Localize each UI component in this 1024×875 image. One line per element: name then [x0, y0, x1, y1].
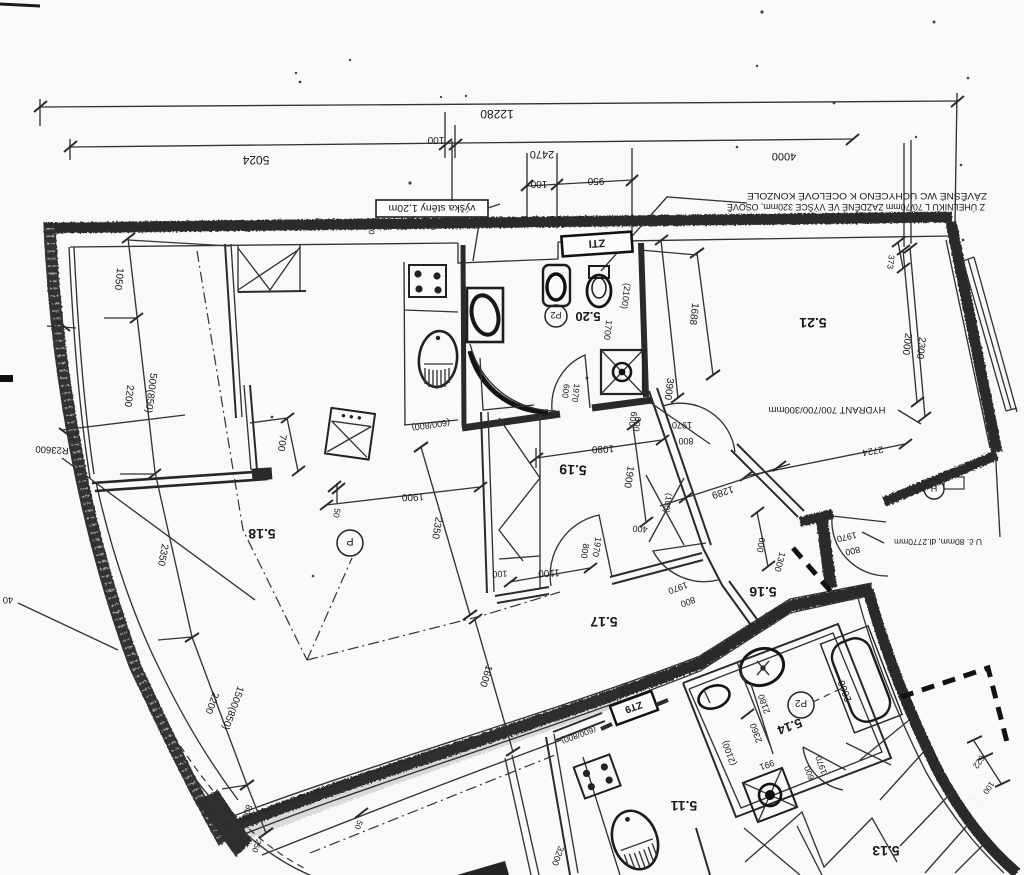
svg-text:800: 800 [678, 436, 693, 446]
svg-text:4000: 4000 [772, 150, 796, 162]
svg-text:5.19: 5.19 [559, 461, 587, 478]
svg-text:1080: 1080 [591, 442, 614, 454]
svg-text:5.13: 5.13 [872, 843, 899, 859]
svg-text:12280: 12280 [480, 107, 514, 121]
svg-text:P: P [346, 535, 353, 547]
svg-text:5.20: 5.20 [575, 309, 600, 324]
svg-text:5.18: 5.18 [248, 526, 275, 542]
svg-text:5.21: 5.21 [799, 315, 826, 331]
svg-text:950: 950 [587, 175, 604, 186]
svg-text:100: 100 [530, 178, 547, 189]
svg-text:U č. 80mm, dl.2770mm: U č. 80mm, dl.2770mm [894, 537, 982, 547]
svg-text:700: 700 [275, 434, 288, 452]
svg-text:5.16: 5.16 [749, 584, 776, 600]
svg-text:P2: P2 [794, 697, 807, 708]
svg-text:5024: 5024 [242, 153, 269, 167]
svg-text:400: 400 [632, 523, 648, 534]
svg-text:R23600: R23600 [35, 443, 69, 456]
svg-text:2470: 2470 [530, 148, 554, 160]
svg-text:5.17: 5.17 [590, 614, 617, 630]
svg-text:ZÁVĚSNÉ WC UCHYCENO K OCELOVÉ: ZÁVĚSNÉ WC UCHYCENO K OCELOVÉ KONZOLE [747, 190, 987, 201]
svg-text:5.11: 5.11 [671, 798, 698, 814]
svg-text:výška stěny 1,20m: výška stěny 1,20m [388, 202, 475, 214]
svg-text:P2: P2 [550, 310, 561, 320]
svg-text:1900: 1900 [401, 490, 424, 502]
svg-text:1100: 1100 [537, 566, 559, 578]
svg-text:H: H [931, 483, 938, 493]
svg-text:600: 600 [560, 383, 572, 399]
svg-text:40: 40 [3, 594, 14, 605]
svg-text:50: 50 [331, 507, 343, 518]
svg-text:100: 100 [427, 134, 444, 145]
svg-text:1970: 1970 [672, 420, 692, 430]
svg-text:100: 100 [492, 569, 508, 580]
svg-text:Z ÚHELNÍKU L 70/70mm ZAZDĚNÉ V: Z ÚHELNÍKU L 70/70mm ZAZDĚNÉ VE VÝŠCE 32… [727, 201, 985, 212]
svg-text:ZTI: ZTI [588, 236, 605, 249]
svg-text:HYDRANT 700/700/300mm: HYDRANT 700/700/300mm [768, 404, 885, 415]
svg-text:373: 373 [885, 254, 897, 270]
